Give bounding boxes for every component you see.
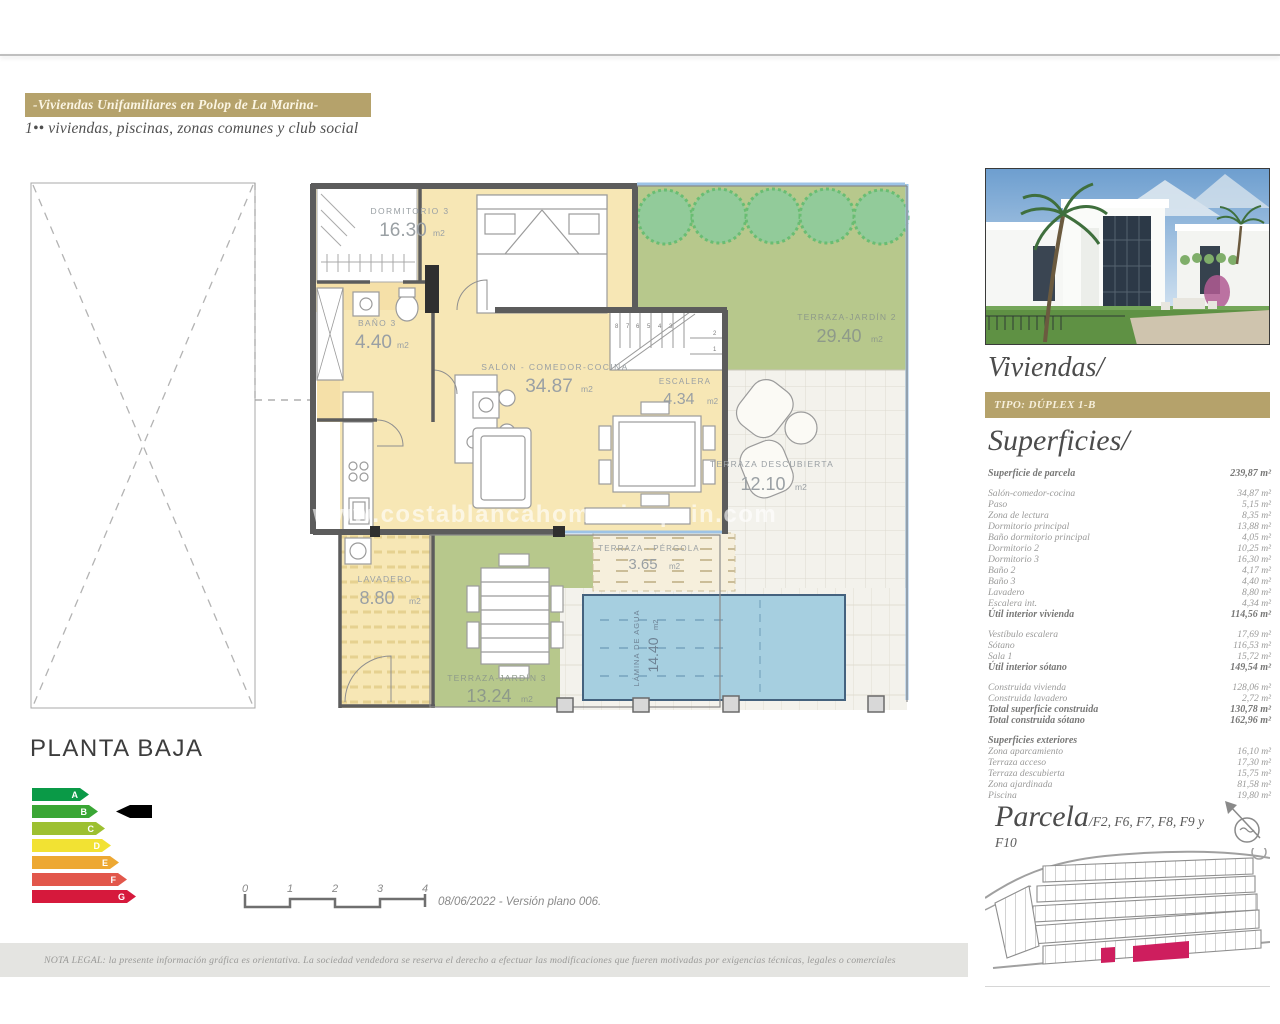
svg-text:SALÓN - COMEDOR-COCINA: SALÓN - COMEDOR-COCINA (481, 362, 628, 372)
hero-image (985, 168, 1270, 345)
table-row: Vestíbulo escalera17,69 m² (988, 629, 1271, 640)
svg-text:14.40: 14.40 (645, 637, 661, 672)
table-row: Salón-comedor-cocina34,87 m² (988, 488, 1271, 499)
svg-text:E: E (102, 858, 108, 868)
row-value: 149,54 m² (1230, 662, 1271, 673)
svg-text:DORMITORIO 3: DORMITORIO 3 (371, 206, 450, 216)
table-row: Baño 34,40 m² (988, 576, 1271, 587)
table-group: Salón-comedor-cocina34,87 m²Paso5,15 m²Z… (988, 488, 1271, 620)
table-row: Baño dormitorio principal4,05 m² (988, 532, 1271, 543)
table-group: Vestíbulo escalera17,69 m²Sótano116,53 m… (988, 629, 1271, 673)
row-label: Terraza acceso (988, 757, 1046, 768)
row-value: 2,72 m² (1242, 693, 1271, 704)
row-value: 8,35 m² (1242, 510, 1271, 521)
row-label: Construida vivienda (988, 682, 1066, 693)
svg-text:8.80: 8.80 (359, 588, 394, 608)
svg-text:C: C (88, 824, 95, 834)
table-row: Escalera int.4,34 m² (988, 598, 1271, 609)
parcela-map (985, 848, 1270, 970)
row-value: 4,34 m² (1242, 598, 1271, 609)
row-value: 162,96 m² (1230, 715, 1271, 726)
svg-text:m2: m2 (795, 482, 807, 492)
scale-bar: 0 1 2 3 4 08/06/2022 - Versión plano 006… (233, 880, 623, 916)
row-value: 114,56 m² (1231, 609, 1271, 620)
row-label: Paso (988, 499, 1007, 510)
svg-text:LÁMINA DE AGUA: LÁMINA DE AGUA (632, 610, 641, 687)
row-label: Útil interior vivienda (988, 609, 1074, 620)
row-label: Útil interior sótano (988, 662, 1067, 673)
table-row: Dormitorio 210,25 m² (988, 543, 1271, 554)
pool (583, 595, 845, 700)
row-label: Superficies exteriores (988, 735, 1077, 746)
dining-table-icon (599, 402, 715, 506)
plan-version: 08/06/2022 - Versión plano 006. (438, 896, 601, 908)
svg-text:3.65: 3.65 (628, 556, 657, 573)
table-group: Superficie de parcela239,87 m² (988, 468, 1271, 479)
table-row: Útil interior sótano149,54 m² (988, 662, 1271, 673)
row-value: 4,05 m² (1242, 532, 1271, 543)
svg-text:m2: m2 (581, 384, 593, 394)
svg-text:m2: m2 (707, 397, 719, 406)
table-group: Superficies exterioresZona aparcamiento1… (988, 735, 1271, 801)
row-label: Sótano (988, 640, 1015, 651)
row-label: Superficie de parcela (988, 468, 1075, 479)
svg-text:BAÑO 3: BAÑO 3 (358, 318, 396, 328)
row-value: 130,78 m² (1230, 704, 1271, 715)
row-label: Terraza descubierta (988, 768, 1065, 779)
svg-text:13.24: 13.24 (466, 686, 511, 706)
row-label: Lavadero (988, 587, 1024, 598)
tipo-badge: TIPO: DÚPLEX 1-B (985, 392, 1270, 418)
svg-text:4.40: 4.40 (355, 332, 392, 353)
pergola-floor (593, 533, 735, 591)
row-label: Total superficie construida (988, 704, 1098, 715)
table-row: Dormitorio 316,30 m² (988, 554, 1271, 565)
row-value: 4,40 m² (1242, 576, 1271, 587)
row-label: Zona aparcamiento (988, 746, 1063, 757)
row-label: Zona ajardinada (988, 779, 1052, 790)
svg-text:G: G (118, 892, 125, 902)
tree-icons (638, 189, 908, 244)
washer-icon (345, 538, 371, 564)
svg-text:1: 1 (287, 883, 293, 895)
table-row: Baño 24,17 m² (988, 565, 1271, 576)
table-row: Zona ajardinada81,58 m² (988, 779, 1271, 790)
svg-text:F: F (111, 875, 117, 885)
row-value: 17,69 m² (1237, 629, 1271, 640)
row-label: Dormitorio 3 (988, 554, 1039, 565)
svg-text:4.34: 4.34 (663, 391, 694, 408)
energy-indicator-arrow (116, 805, 152, 818)
row-label: Salón-comedor-cocina (988, 488, 1075, 499)
neighbour-parcel (31, 183, 313, 708)
svg-text:m2: m2 (651, 620, 660, 630)
superficies-table: Superficie de parcela239,87 m²Salón-come… (988, 468, 1271, 810)
svg-text:m2: m2 (397, 340, 409, 350)
row-value: 128,06 m² (1232, 682, 1271, 693)
table-row: Superficie de parcela239,87 m² (988, 468, 1271, 479)
svg-text:A: A (72, 790, 79, 800)
top-divider (0, 54, 1280, 56)
svg-text:m2: m2 (433, 228, 445, 238)
table-row: Sótano116,53 m² (988, 640, 1271, 651)
svg-text:m2: m2 (409, 596, 421, 606)
row-value: 8,80 m² (1242, 587, 1271, 598)
legal-band: NOTA LEGAL: la presente información gráf… (0, 943, 968, 977)
table-row: Dormitorio principal13,88 m² (988, 521, 1271, 532)
bed-icon (477, 195, 607, 313)
svg-text:TERRAZA DESCUBIERTA: TERRAZA DESCUBIERTA (710, 459, 834, 469)
row-label: Sala 1 (988, 651, 1012, 662)
svg-text:TERRAZA-JARDÍN 2: TERRAZA-JARDÍN 2 (797, 312, 897, 322)
row-value: 5,15 m² (1242, 499, 1271, 510)
svg-text:0: 0 (242, 883, 249, 895)
row-value: 81,58 m² (1237, 779, 1271, 790)
svg-text:ESCALERA: ESCALERA (659, 377, 711, 386)
row-value: 15,75 m² (1237, 768, 1271, 779)
row-label: Baño 3 (988, 576, 1015, 587)
viviendas-heading: Viviendas/ (988, 352, 1104, 384)
table-row: Construida vivienda128,06 m² (988, 682, 1271, 693)
row-label: Baño dormitorio principal (988, 532, 1090, 543)
outdoor-table-icon (467, 554, 563, 678)
north-arrow-icon (1218, 798, 1270, 848)
table-row: Paso5,15 m² (988, 499, 1271, 510)
svg-text:m2: m2 (521, 694, 533, 704)
parcela-title: Parcela (995, 800, 1089, 833)
scale-bar-line (245, 894, 425, 907)
row-value: 15,72 m² (1237, 651, 1271, 662)
svg-text:34.87: 34.87 (525, 376, 573, 397)
table-row: Construida lavadero2,72 m² (988, 693, 1271, 704)
svg-text:4: 4 (422, 883, 428, 895)
svg-text:m2: m2 (871, 334, 883, 344)
svg-text:29.40: 29.40 (816, 326, 861, 346)
svg-text:3: 3 (377, 883, 384, 895)
table-row: Total superficie construida130,78 m² (988, 704, 1271, 715)
energy-rating-chart: A B C D E F G (28, 788, 188, 918)
row-value: 116,53 m² (1233, 640, 1271, 651)
row-value: 13,88 m² (1237, 521, 1271, 532)
plan-title: PLANTA BAJA (30, 735, 203, 763)
row-value: 16,30 m² (1237, 554, 1271, 565)
row-label: Dormitorio 2 (988, 543, 1039, 554)
row-label: Vestíbulo escalera (988, 629, 1058, 640)
legal-note: NOTA LEGAL: la presente información gráf… (44, 955, 896, 966)
row-value: 34,87 m² (1237, 488, 1271, 499)
table-row: Sala 115,72 m² (988, 651, 1271, 662)
project-banner: -Viviendas Unifamiliares en Polop de La … (25, 93, 371, 117)
svg-text:TERRAZA-JARDÍN 3: TERRAZA-JARDÍN 3 (447, 673, 547, 683)
parcela-heading: Parcela/F2, F6, F7, F8, F9 y F10 (995, 800, 1225, 852)
table-row: Zona aparcamiento16,10 m² (988, 746, 1271, 757)
svg-text:LAVADERO: LAVADERO (358, 574, 413, 584)
table-row: Total construida sótano162,96 m² (988, 715, 1271, 726)
table-group-header: Superficies exteriores (988, 735, 1271, 746)
project-subtitle: 1•• viviendas, piscinas, zonas comunes y… (25, 120, 545, 138)
table-row: Útil interior vivienda114,56 m² (988, 609, 1271, 620)
energy-bars: A B C D E F G (32, 788, 136, 903)
sidebar-bottom-divider (985, 986, 1270, 987)
floor-plan: 87 65 43 21 (25, 170, 955, 730)
svg-text:2: 2 (331, 883, 338, 895)
svg-text:16.30: 16.30 (379, 220, 427, 241)
svg-text:12.10: 12.10 (740, 474, 785, 494)
svg-text:TERRAZA - PÉRGOLA: TERRAZA - PÉRGOLA (598, 544, 699, 553)
svg-text:m2: m2 (669, 562, 681, 571)
row-value: 4,17 m² (1242, 565, 1271, 576)
page: -Viviendas Unifamiliares en Polop de La … (0, 0, 1280, 1024)
row-label: Zona de lectura (988, 510, 1049, 521)
row-value: 16,10 m² (1237, 746, 1271, 757)
table-row: Lavadero8,80 m² (988, 587, 1271, 598)
table-row: Terraza descubierta15,75 m² (988, 768, 1271, 779)
table-row: Zona de lectura8,35 m² (988, 510, 1271, 521)
row-label: Total construida sótano (988, 715, 1085, 726)
row-value: 10,25 m² (1237, 543, 1271, 554)
row-label: Construida lavadero (988, 693, 1067, 704)
row-value: 239,87 m² (1230, 468, 1271, 479)
row-label: Dormitorio principal (988, 521, 1069, 532)
svg-text:D: D (94, 841, 101, 851)
table-group: Construida vivienda128,06 m²Construida l… (988, 682, 1271, 726)
superficies-heading: Superficies/ (988, 424, 1130, 458)
row-label: Baño 2 (988, 565, 1015, 576)
table-row: Terraza acceso17,30 m² (988, 757, 1271, 768)
svg-text:B: B (81, 807, 88, 817)
row-label: Escalera int. (988, 598, 1037, 609)
watermark: www.costablancahomesinspain.com (312, 501, 777, 528)
row-value: 17,30 m² (1237, 757, 1271, 768)
